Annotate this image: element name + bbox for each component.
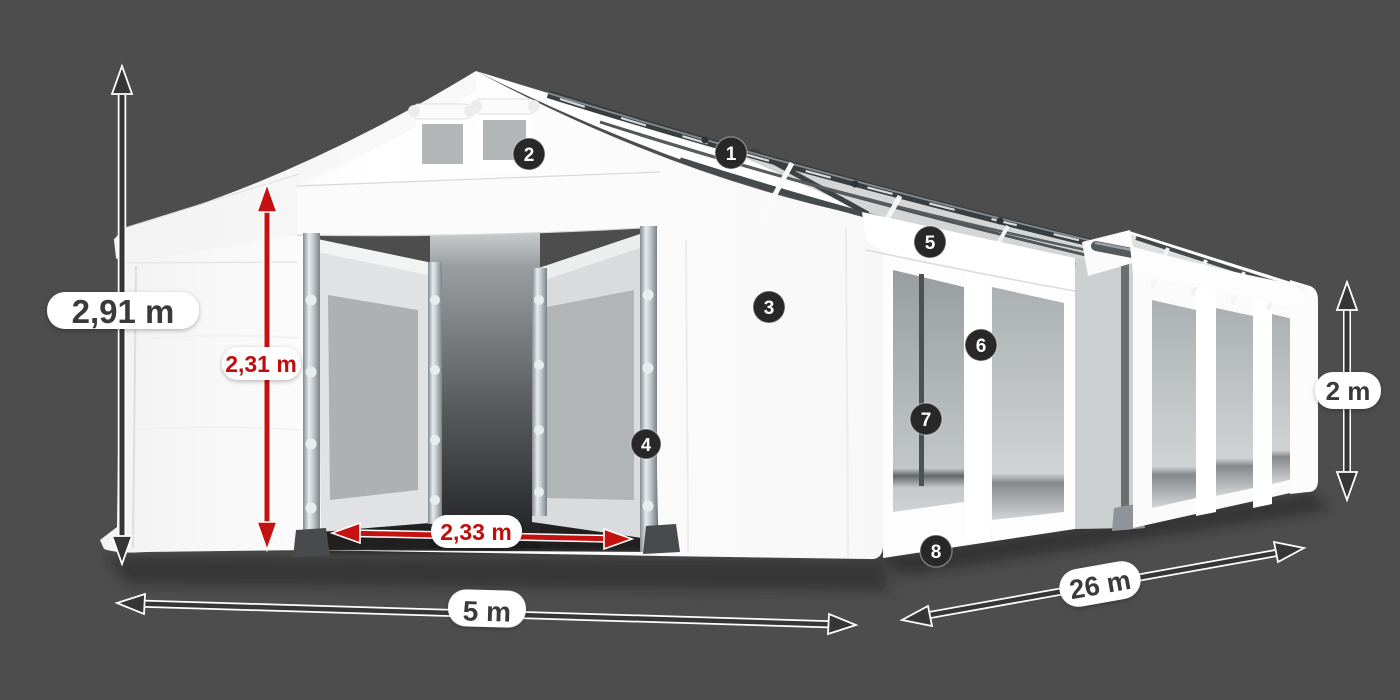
svg-text:3: 3 <box>764 298 775 319</box>
svg-text:7: 7 <box>921 410 932 431</box>
svg-text:6: 6 <box>976 336 987 357</box>
svg-text:2,31 m: 2,31 m <box>225 351 297 377</box>
svg-text:2 m: 2 m <box>1326 376 1371 406</box>
svg-text:5: 5 <box>925 233 936 254</box>
svg-text:4: 4 <box>641 435 651 455</box>
svg-text:1: 1 <box>726 144 737 165</box>
svg-text:2: 2 <box>524 145 535 166</box>
svg-text:2,91 m: 2,91 m <box>72 293 175 330</box>
svg-text:2,33 m: 2,33 m <box>440 519 512 545</box>
svg-text:5 m: 5 m <box>462 595 511 627</box>
svg-text:8: 8 <box>931 542 942 563</box>
